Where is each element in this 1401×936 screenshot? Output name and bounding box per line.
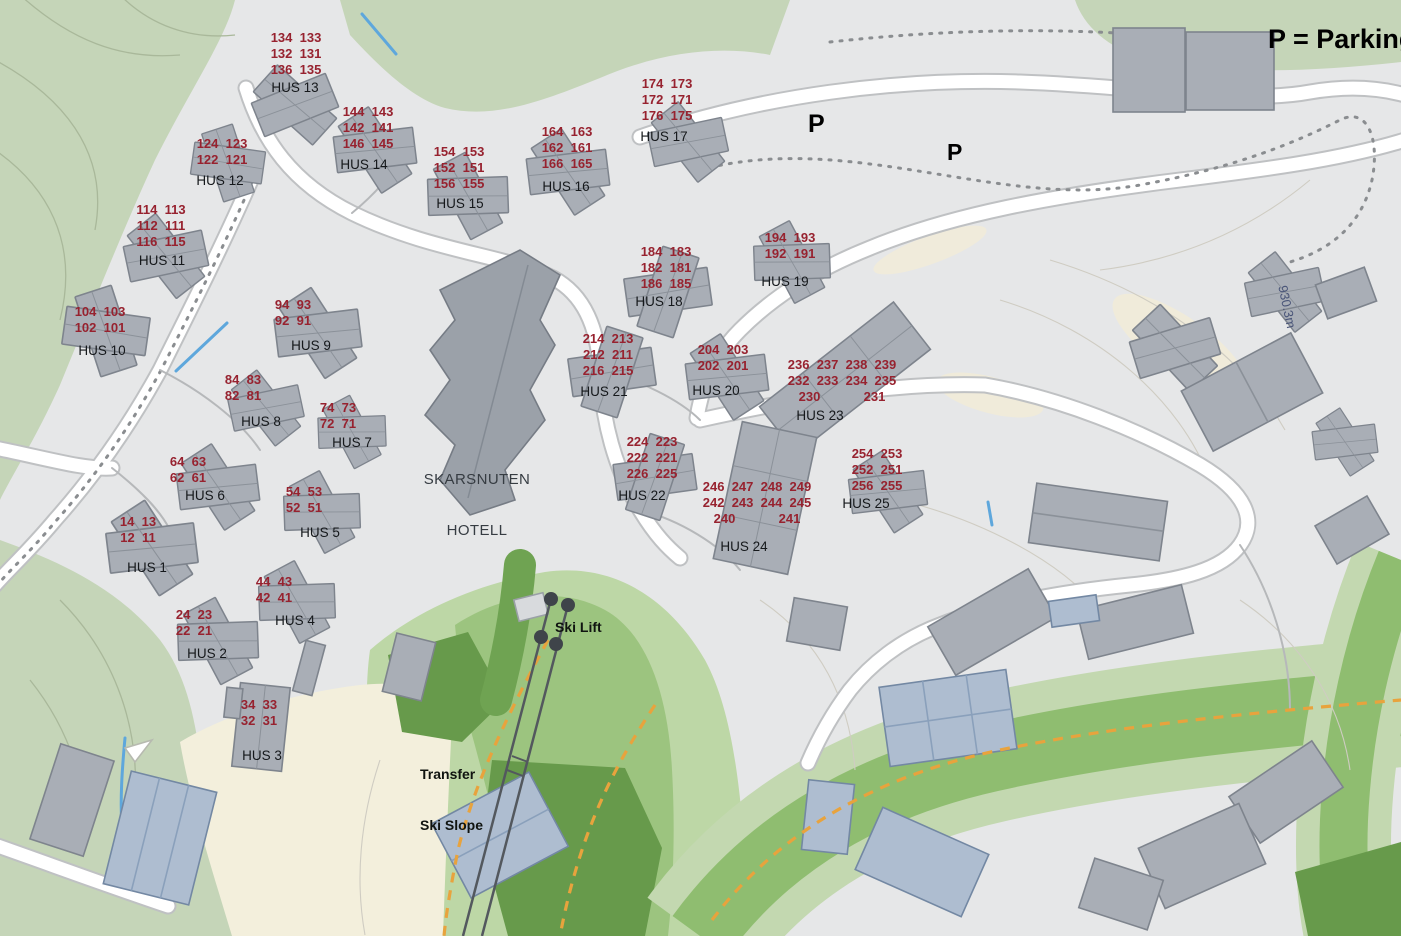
house-label-hus-6: HUS 6 [185,489,225,503]
unit-number-row: 156 155 [434,176,485,192]
unit-number-row: 14 13 [120,514,156,530]
house-label-hus-12: HUS 12 [196,174,243,188]
unit-number-row: 204 203 [698,342,749,358]
unit-number-row: 44 43 [256,574,292,590]
unit-numbers-hus-8: 84 8382 81 [225,372,261,404]
unit-number-row: 52 51 [286,500,322,516]
unit-number-row: 186 185 [641,276,692,292]
house-label-hus-17: HUS 17 [640,130,687,144]
unit-number-row: 146 145 [343,136,394,152]
parking-legend: P = Parking [1268,24,1401,55]
unit-numbers-hus-17: 174 173172 171176 175 [642,76,693,124]
house-label-hus-13: HUS 13 [271,81,318,95]
house-label-hus-11: HUS 11 [139,254,185,268]
unit-number-row: 216 215 [583,363,634,379]
unit-number-row: 194 193 [765,230,816,246]
unit-number-row: 192 191 [765,246,816,262]
unit-number-row: 202 201 [698,358,749,374]
unit-number-row: 124 123 [197,136,248,152]
unit-number-row: 136 135 [271,62,322,78]
transfer-label-line1: Transfer [420,766,483,783]
unit-number-row: 144 143 [343,104,394,120]
house-label-hus-2: HUS 2 [187,647,227,661]
unit-number-row: 132 131 [271,46,322,62]
house-label-hus-18: HUS 18 [635,295,682,309]
unit-numbers-hus-23: 236 237 238 239232 233 234 235230 231 [788,357,896,405]
unit-numbers-hus-25: 254 253252 251256 255 [852,446,903,494]
hotel-label-line1: SKARSNUTEN [424,471,531,488]
unit-number-row: 42 41 [256,590,292,606]
unit-numbers-hus-12: 124 123122 121 [197,136,248,168]
hotel-label-line2: HOTELL [424,522,531,539]
house-label-hus-14: HUS 14 [340,158,387,172]
unit-number-row: 102 101 [75,320,126,336]
unit-number-row: 252 251 [852,462,903,478]
unit-number-row: 254 253 [852,446,903,462]
unit-number-row: 242 243 244 245 [703,495,811,511]
unit-number-row: 236 237 238 239 [788,357,896,373]
house-label-hus-15: HUS 15 [436,197,483,211]
unit-number-row: 142 141 [343,120,394,136]
house-label-hus-9: HUS 9 [291,339,331,353]
ski-lift-label: Ski Lift [555,619,602,636]
unit-number-row: 232 233 234 235 [788,373,896,389]
unit-number-row: 230 231 [788,389,896,405]
house-label-hus-25: HUS 25 [842,497,889,511]
house-label-hus-22: HUS 22 [618,489,665,503]
house-label-hus-4: HUS 4 [275,614,315,628]
house-label-hus-10: HUS 10 [78,344,125,358]
house-label-hus-20: HUS 20 [692,384,739,398]
unit-number-row: 256 255 [852,478,903,494]
unit-number-row: 32 31 [241,713,277,729]
unit-number-row: 212 211 [583,347,634,363]
unit-numbers-hus-3: 34 3332 31 [241,697,277,729]
hotel-label: SKARSNUTEN HOTELL [424,437,531,556]
unit-numbers-hus-21: 214 213212 211216 215 [583,331,634,379]
unit-number-row: 222 221 [627,450,678,466]
unit-number-row: 84 83 [225,372,261,388]
transfer-label-line2: Ski Slope [420,817,483,834]
unit-number-row: 134 133 [271,30,322,46]
unit-numbers-hus-16: 164 163162 161166 165 [542,124,593,172]
transfer-ski-slope-label: Transfer Ski Slope [420,732,483,851]
unit-number-row: 224 223 [627,434,678,450]
house-label-hus-7: HUS 7 [332,436,372,450]
unit-number-row: 112 111 [136,218,185,234]
unit-number-row: 240 241 [703,511,811,527]
unit-numbers-hus-18: 184 183182 181186 185 [641,244,692,292]
unit-number-row: 122 121 [197,152,248,168]
unit-numbers-hus-13: 134 133132 131136 135 [271,30,322,78]
unit-numbers-hus-6: 64 6362 61 [170,454,206,486]
unit-number-row: 162 161 [542,140,593,156]
house-label-hus-8: HUS 8 [241,415,281,429]
house-label-hus-1: HUS 1 [127,561,167,575]
house-label-hus-19: HUS 19 [761,275,808,289]
house-label-hus-24: HUS 24 [720,540,767,554]
unit-numbers-hus-9: 94 9392 91 [275,297,311,329]
unit-number-row: 166 165 [542,156,593,172]
unit-number-row: 114 113 [136,202,185,218]
unit-number-row: 184 183 [641,244,692,260]
resort-map: P = Parking P P SKARSNUTEN HOTELL Ski Li… [0,0,1401,936]
unit-number-row: 174 173 [642,76,693,92]
unit-numbers-hus-4: 44 4342 41 [256,574,292,606]
unit-numbers-hus-5: 54 5352 51 [286,484,322,516]
unit-number-row: 226 225 [627,466,678,482]
unit-numbers-hus-14: 144 143142 141146 145 [343,104,394,152]
unit-numbers-hus-15: 154 153152 151156 155 [434,144,485,192]
unit-number-row: 172 171 [642,92,693,108]
unit-numbers-hus-24: 246 247 248 249242 243 244 245240 241 [703,479,811,527]
house-label-hus-16: HUS 16 [542,180,589,194]
unit-number-row: 92 91 [275,313,311,329]
unit-number-row: 22 21 [176,623,212,639]
unit-number-row: 154 153 [434,144,485,160]
unit-numbers-hus-7: 74 7372 71 [320,400,356,432]
unit-number-row: 62 61 [170,470,206,486]
parking-p-2: P [947,139,962,166]
parking-p-1: P [808,110,825,139]
unit-numbers-hus-19: 194 193192 191 [765,230,816,262]
unit-numbers-hus-1: 14 1312 11 [120,514,156,546]
unit-number-row: 152 151 [434,160,485,176]
house-label-hus-5: HUS 5 [300,526,340,540]
unit-numbers-hus-11: 114 113112 111116 115 [136,202,185,250]
unit-numbers-hus-22: 224 223222 221226 225 [627,434,678,482]
unit-number-row: 54 53 [286,484,322,500]
unit-number-row: 82 81 [225,388,261,404]
unit-number-row: 104 103 [75,304,126,320]
unit-number-row: 182 181 [641,260,692,276]
house-label-hus-21: HUS 21 [580,385,627,399]
unit-number-row: 12 11 [120,530,156,546]
unit-numbers-hus-10: 104 103102 101 [75,304,126,336]
unit-number-row: 64 63 [170,454,206,470]
unit-number-row: 24 23 [176,607,212,623]
unit-number-row: 116 115 [136,234,185,250]
unit-number-row: 164 163 [542,124,593,140]
house-label-hus-23: HUS 23 [796,409,843,423]
house-label-hus-3: HUS 3 [242,749,282,763]
unit-number-row: 34 33 [241,697,277,713]
unit-number-row: 72 71 [320,416,356,432]
unit-numbers-hus-2: 24 2322 21 [176,607,212,639]
unit-number-row: 94 93 [275,297,311,313]
unit-number-row: 176 175 [642,108,693,124]
unit-numbers-hus-20: 204 203202 201 [698,342,749,374]
unit-number-row: 246 247 248 249 [703,479,811,495]
unit-number-row: 214 213 [583,331,634,347]
unit-number-row: 74 73 [320,400,356,416]
